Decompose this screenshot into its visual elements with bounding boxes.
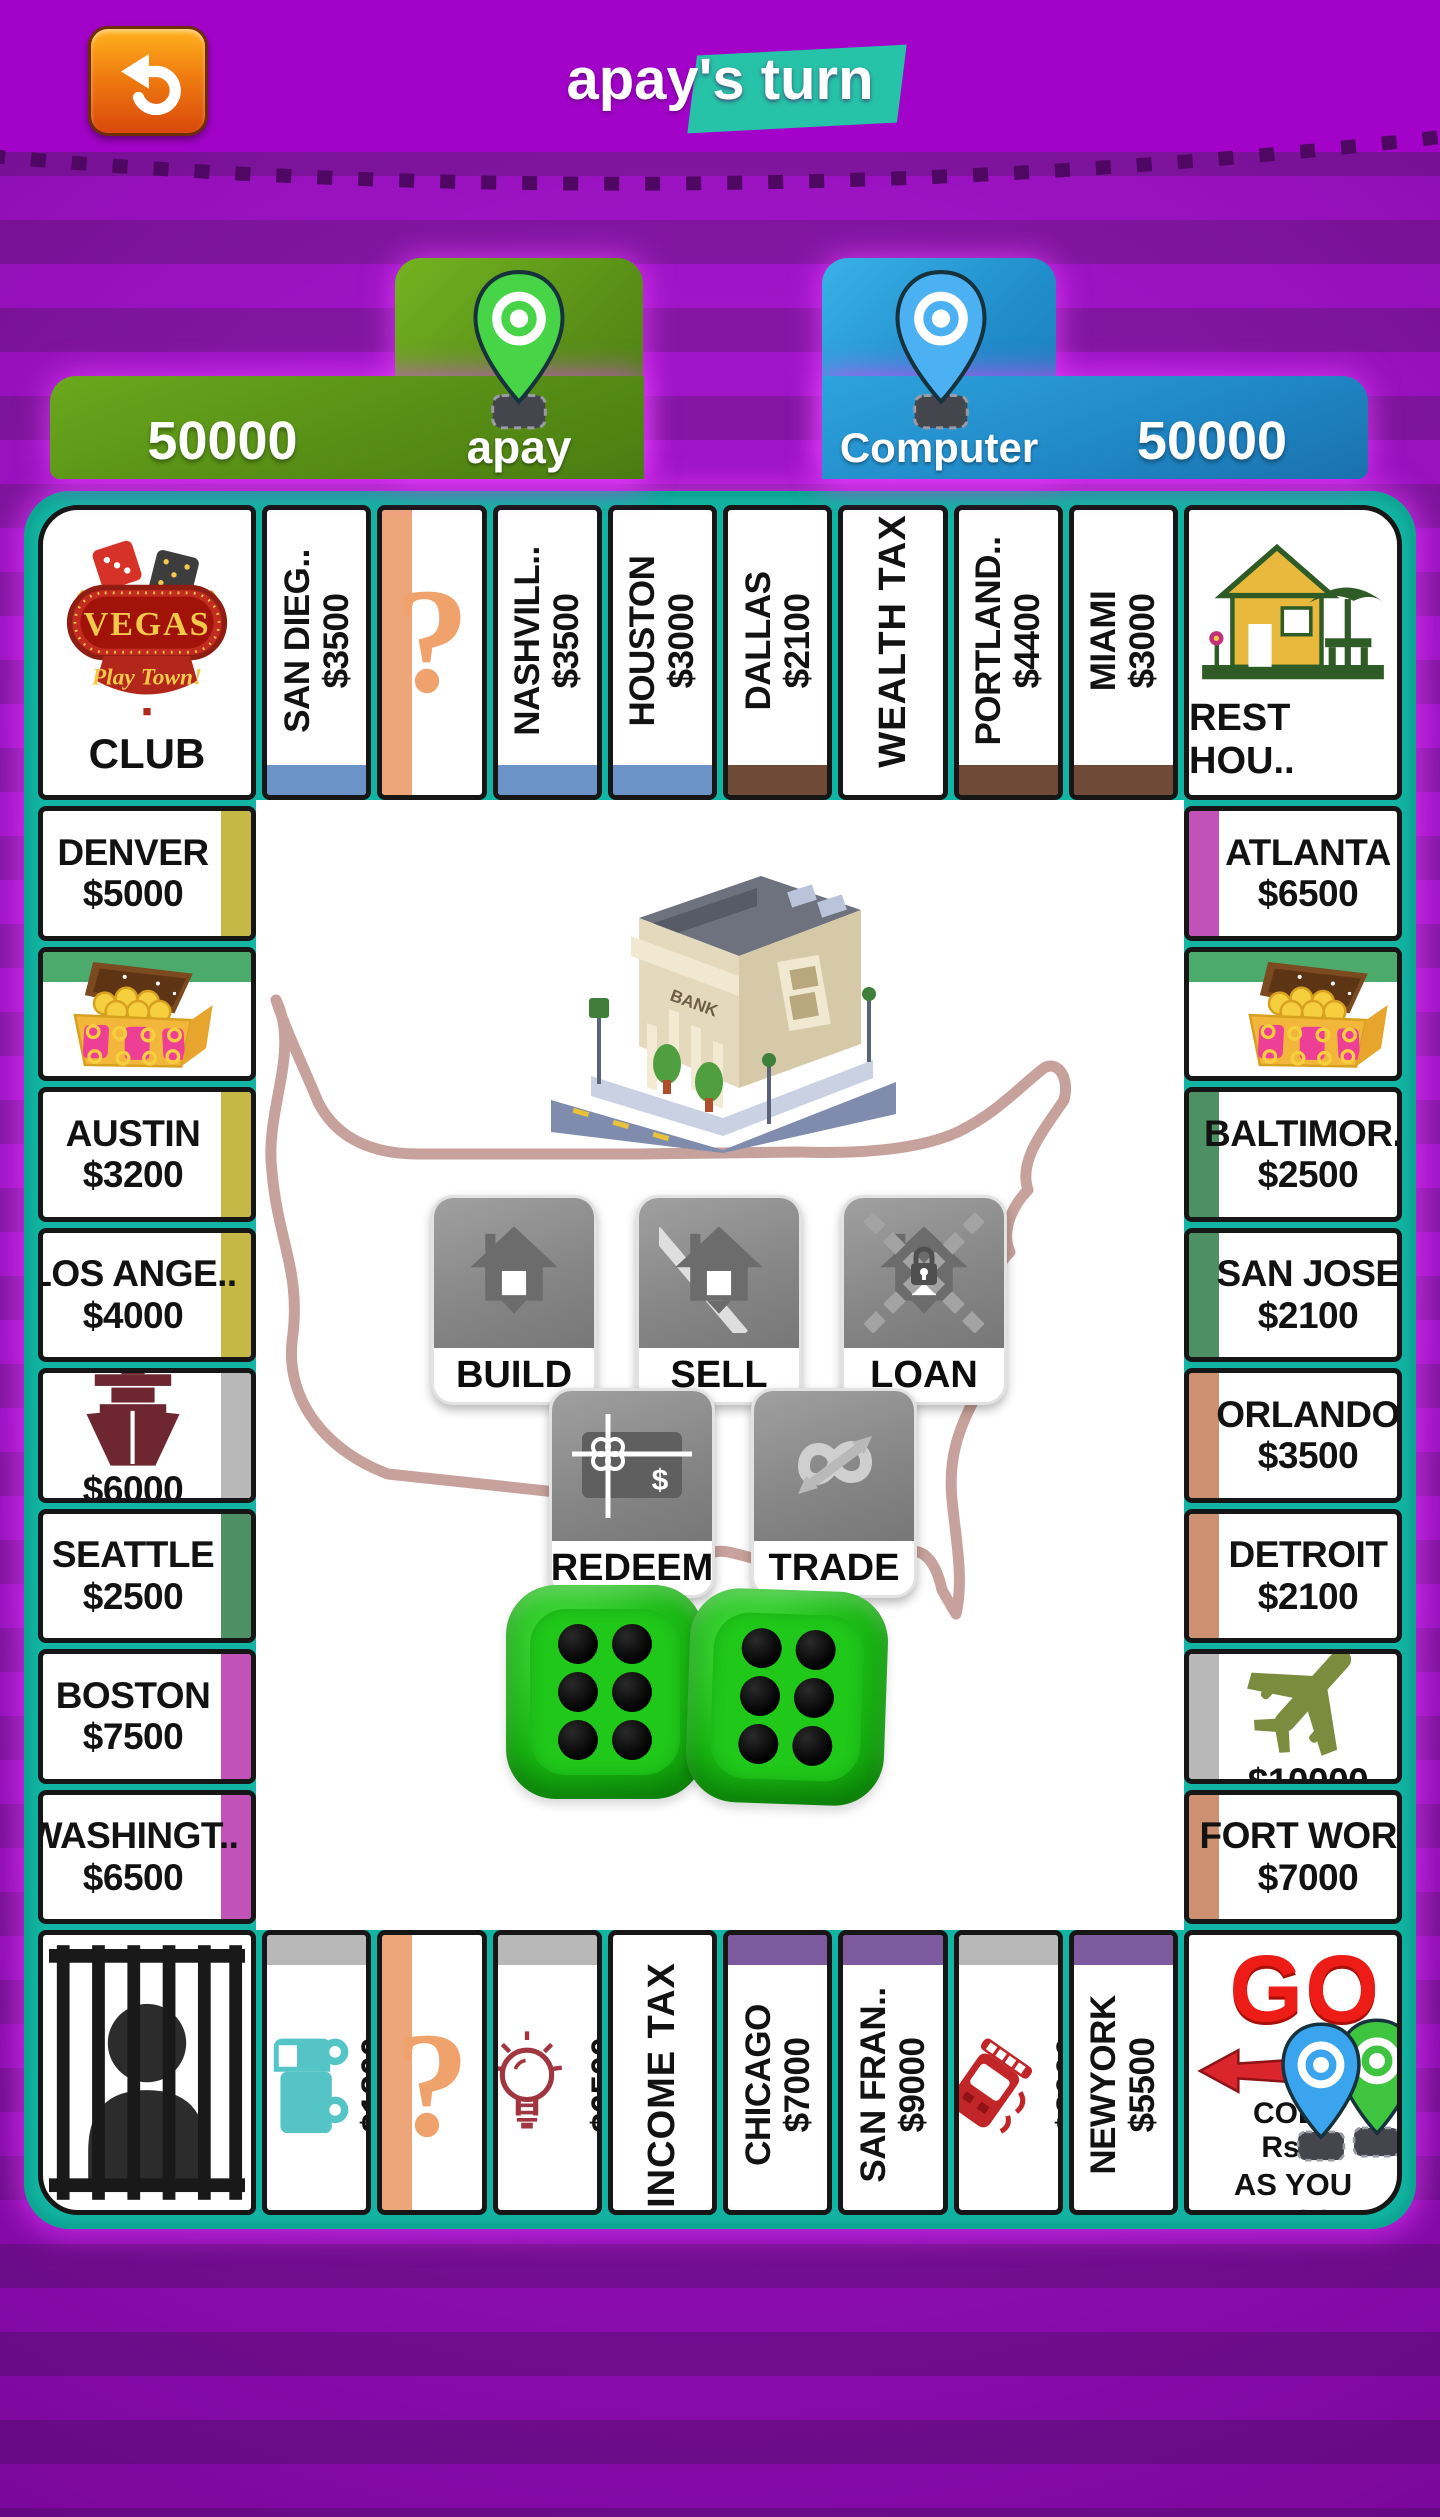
- sell-house-icon: [659, 1213, 779, 1333]
- corner-go[interactable]: GO COL.. Rs... AS YOU PASS: [1184, 1930, 1402, 2215]
- die-pip: [741, 1627, 782, 1668]
- trade-button[interactable]: TRADE: [751, 1388, 917, 1598]
- tile-chance[interactable]: ?: [377, 505, 486, 800]
- train-icon: [954, 2023, 1051, 2147]
- tile-price: $2100: [778, 593, 817, 688]
- build-button[interactable]: BUILD: [431, 1195, 597, 1405]
- tile-san-jose[interactable]: SAN JOSE$2100: [1184, 1228, 1402, 1363]
- die-pip: [558, 1720, 598, 1760]
- tile-name: WASHINGT..: [38, 1815, 238, 1856]
- question-mark-icon: ?: [394, 566, 469, 716]
- vegas-sign-icon: [57, 534, 237, 730]
- die-pip: [739, 1675, 780, 1716]
- ship-icon: [74, 1368, 192, 1469]
- board-col-right: ATLANTA$6500 BALTIMOR..$2500 SAN JOSE$21…: [1184, 806, 1402, 1924]
- die-pip: [738, 1723, 779, 1764]
- tile-income-tax[interactable]: INCOME TAX: [608, 1930, 717, 2215]
- question-mark-icon: ?: [394, 2010, 469, 2160]
- tile-wealth-tax[interactable]: WEALTH TAX: [838, 505, 947, 800]
- tile-price: $10000: [1248, 1761, 1368, 1784]
- tile-plane[interactable]: $10000: [1184, 1649, 1402, 1784]
- tile-name: SAN JOSE: [1216, 1253, 1399, 1294]
- tile-dallas[interactable]: DALLAS$2100: [723, 505, 832, 800]
- tile-name: SAN FRAN..: [854, 1987, 893, 2182]
- tile-denver[interactable]: DENVER$5000: [38, 806, 256, 941]
- tile-austin[interactable]: AUSTIN$3200: [38, 1087, 256, 1222]
- corner-jail[interactable]: [38, 1930, 256, 2215]
- die-1[interactable]: [506, 1585, 704, 1799]
- tile-price: $6500: [586, 2037, 602, 2132]
- tile-detroit[interactable]: DETROIT$2100: [1184, 1509, 1402, 1644]
- tile-houston[interactable]: HOUSTON$3000: [608, 505, 717, 800]
- tile-name: DETROIT: [1229, 1534, 1388, 1575]
- apay-pin-icon: [464, 266, 574, 438]
- computer-name: Computer: [822, 424, 1056, 472]
- tile-atlanta[interactable]: ATLANTA$6500: [1184, 806, 1402, 941]
- tile-price: $6000: [83, 1469, 183, 1503]
- die-face: [709, 1611, 865, 1782]
- tile-name: INCOME TAX: [641, 1962, 684, 2208]
- tile-san-fran[interactable]: SAN FRAN..$9000: [838, 1930, 947, 2215]
- die-pip: [612, 1672, 652, 1712]
- tile-price: $2100: [1258, 1295, 1358, 1336]
- redeem-cheque-icon: [572, 1406, 692, 1526]
- loan-house-icon: [864, 1213, 984, 1333]
- tile-price: $3000: [662, 593, 701, 688]
- treasure-chest-icon: [1220, 952, 1396, 1077]
- tile-name: ATLANTA: [1225, 832, 1391, 873]
- tile-name: DENVER: [57, 832, 208, 873]
- tile-price: $9000: [893, 2037, 932, 2132]
- truck-icon: [262, 2027, 355, 2143]
- computer-pin-icon: [886, 266, 996, 438]
- turn-banner: apay's turn: [0, 42, 1440, 117]
- tile-price: $6500: [83, 1857, 183, 1898]
- tile-washingt[interactable]: WASHINGT..$6500: [38, 1790, 256, 1925]
- tile-price: $3500: [317, 593, 356, 688]
- action-label: TRADE: [754, 1541, 914, 1595]
- tile-name: LOS ANGE..: [38, 1253, 237, 1294]
- apay-balance: 50000: [50, 410, 395, 472]
- computer-balance: 50000: [1056, 410, 1368, 472]
- board-row-top: CLUB SAN DIEG..$3500 ? NASHVILL..$3500 H…: [38, 505, 1402, 800]
- tile-name: SAN DIEG..: [277, 549, 316, 733]
- tile-price: $7000: [1258, 1857, 1358, 1898]
- die-pip: [792, 1725, 833, 1766]
- tile-portland[interactable]: PORTLAND..$4400: [954, 505, 1063, 800]
- bulb-icon: [493, 2027, 572, 2143]
- tile-name: CHICAGO: [738, 2004, 777, 2166]
- tile-treasure[interactable]: [38, 947, 256, 1082]
- board-col-left: DENVER$5000 AUSTIN$3200 LOS ANGE..$4000 …: [38, 806, 256, 1924]
- jail-icon: [49, 1941, 245, 2204]
- bank-building-illustration: BANK: [551, 848, 896, 1153]
- tile-bulb[interactable]: $6500: [493, 1930, 602, 2215]
- die-pip: [612, 1720, 652, 1760]
- game-board: CLUB SAN DIEG..$3500 ? NASHVILL..$3500 H…: [24, 491, 1416, 2229]
- undo-arrow-icon: [109, 47, 187, 115]
- corner-label: REST HOU..: [1189, 697, 1397, 783]
- tile-fort-wor[interactable]: FORT WOR..$7000: [1184, 1790, 1402, 1925]
- tile-name: MIAMI: [1084, 590, 1123, 691]
- tile-price: $2500: [83, 1576, 183, 1617]
- tile-name: NEWYORK: [1084, 1995, 1123, 2174]
- die-pip: [795, 1629, 836, 1670]
- build-house-icon: [454, 1213, 574, 1333]
- tile-price: $5500: [1123, 2037, 1162, 2132]
- die-2[interactable]: [684, 1587, 889, 1808]
- rest-house-icon: [1195, 537, 1391, 687]
- tile-boston[interactable]: BOSTON$7500: [38, 1649, 256, 1784]
- tile-price: $2500: [1258, 1154, 1358, 1195]
- tile-price: $5000: [83, 873, 183, 914]
- tile-price: $4000: [83, 1295, 183, 1336]
- tile-nashvill[interactable]: NASHVILL..$3500: [493, 505, 602, 800]
- tile-name: DALLAS: [738, 571, 777, 710]
- tile-price: $3500: [1258, 1435, 1358, 1476]
- tile-newyork[interactable]: NEWYORK$5500: [1069, 1930, 1178, 2215]
- tile-treasure[interactable]: [1184, 947, 1402, 1082]
- trade-arrows-icon: [774, 1406, 894, 1526]
- dotted-arc-divider: [0, 128, 1440, 238]
- corner-label: CLUB: [89, 730, 206, 778]
- die-pip: [558, 1672, 598, 1712]
- loan-button[interactable]: LOAN: [841, 1195, 1007, 1405]
- tile-los-ange[interactable]: LOS ANGE..$4000: [38, 1228, 256, 1363]
- tile-ship[interactable]: $6000: [38, 1368, 256, 1503]
- apay-name: apay: [395, 420, 643, 474]
- go-pass-line: AS YOU PASS: [1189, 2167, 1397, 2215]
- tile-orlando[interactable]: ORLANDO$3500: [1184, 1368, 1402, 1503]
- tile-train[interactable]: $8000: [954, 1930, 1063, 2215]
- die-pip: [612, 1624, 652, 1664]
- tile-name: WEALTH TAX: [871, 514, 914, 767]
- tile-chance[interactable]: ?: [377, 1930, 486, 2215]
- tile-price: $6500: [1258, 873, 1358, 914]
- tile-miami[interactable]: MIAMI$3000: [1069, 505, 1178, 800]
- tile-price: $2100: [1258, 1576, 1358, 1617]
- redeem-button[interactable]: REDEEM: [549, 1388, 715, 1598]
- back-button[interactable]: [88, 26, 208, 136]
- die-face: [530, 1609, 680, 1775]
- tile-name: HOUSTON: [623, 555, 662, 726]
- turn-title: apay's turn: [552, 42, 887, 117]
- tile-seattle[interactable]: SEATTLE$2500: [38, 1509, 256, 1644]
- tile-price: $3500: [547, 593, 586, 688]
- tile-price: $7500: [83, 1716, 183, 1757]
- board-center: BANK BUILD SELL LOAN REDEEM TRADE: [256, 800, 1184, 1930]
- apay-token-pin-icon: [1273, 2019, 1369, 2169]
- board-row-bottom: $1800 ? $6500 INCOME TAX CHICAGO$7000 SA…: [38, 1930, 1402, 2215]
- sell-button[interactable]: SELL: [636, 1195, 802, 1405]
- treasure-chest-icon: [45, 952, 221, 1077]
- tile-price: $1800: [355, 2037, 371, 2132]
- tile-price: $8000: [1051, 2037, 1063, 2132]
- die-pip: [793, 1677, 834, 1718]
- die-pip: [558, 1624, 598, 1664]
- tile-name: BOSTON: [56, 1675, 211, 1716]
- tile-price: $3200: [83, 1154, 183, 1195]
- tile-name: ORLANDO: [1216, 1394, 1400, 1435]
- tile-price: $7000: [778, 2037, 817, 2132]
- corner-rest-house[interactable]: REST HOU..: [1184, 505, 1402, 800]
- tile-name: SEATTLE: [52, 1534, 214, 1575]
- tile-chicago[interactable]: CHICAGO$7000: [723, 1930, 832, 2215]
- tile-name: NASHVILL..: [508, 546, 547, 735]
- tile-baltimor[interactable]: BALTIMOR..$2500: [1184, 1087, 1402, 1222]
- corner-vegas-club[interactable]: CLUB: [38, 505, 256, 800]
- tile-name: FORT WOR..: [1200, 1815, 1402, 1856]
- tile-truck[interactable]: $1800: [262, 1930, 371, 2215]
- tile-san-dieg[interactable]: SAN DIEG..$3500: [262, 505, 371, 800]
- tile-price: $4400: [1008, 593, 1047, 688]
- tile-name: AUSTIN: [66, 1113, 201, 1154]
- plane-icon: [1243, 1649, 1373, 1761]
- tile-price: $3000: [1123, 593, 1162, 688]
- tile-name: PORTLAND..: [969, 536, 1008, 745]
- tile-name: BALTIMOR..: [1204, 1113, 1402, 1154]
